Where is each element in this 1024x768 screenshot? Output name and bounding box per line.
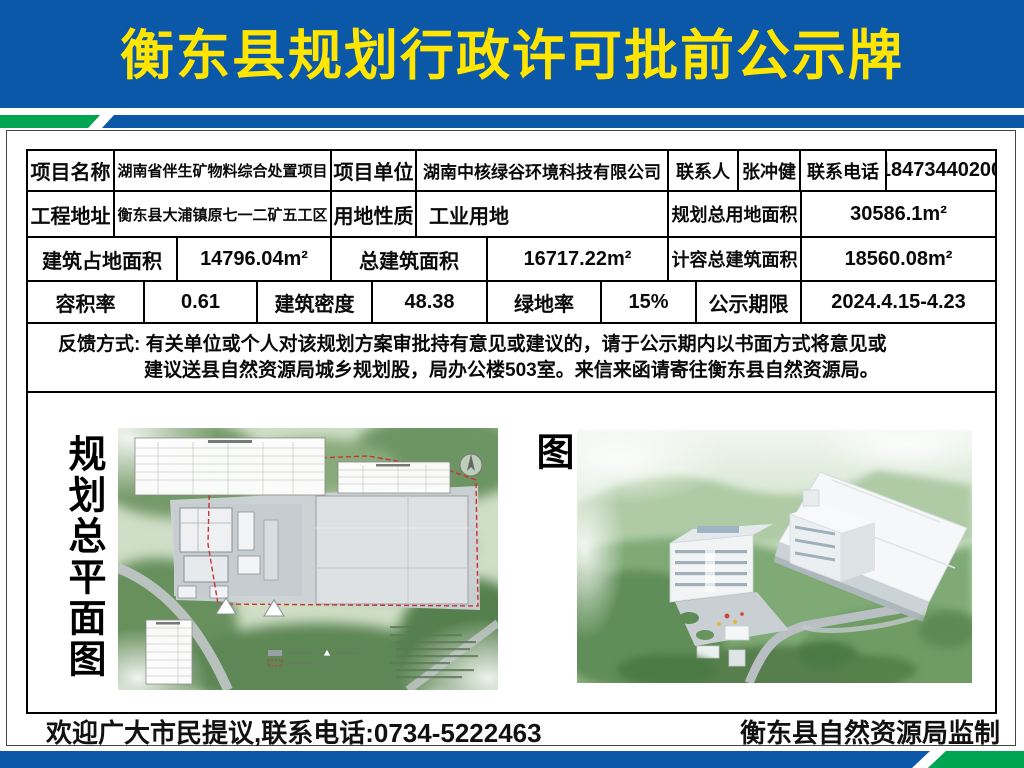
birdseye-image xyxy=(577,430,972,683)
value-total-floor-area: 16717.22m² xyxy=(488,238,669,280)
plan-data-table-1 xyxy=(135,438,325,495)
value-building-density: 48.38 xyxy=(373,282,488,322)
table-row: 建筑占地面积 14796.04m² 总建筑面积 16717.22m² 计容总建筑… xyxy=(28,238,995,282)
label-building-density: 建筑密度 xyxy=(258,282,373,322)
header-banner: 衡东县规划行政许可批前公示牌 xyxy=(0,0,1024,108)
feedback-line-1: 反馈方式: 有关单位或个人对该规划方案审批持有意见或建议的，请于公示期内以书面方… xyxy=(58,332,995,358)
value-project-unit: 湖南中核绿谷环境科技有限公司 xyxy=(417,151,669,190)
label-green-ratio: 绿地率 xyxy=(488,282,602,322)
compass-icon xyxy=(460,454,482,476)
value-total-land-area: 30586.1m² xyxy=(802,192,995,236)
value-building-footprint: 14796.04m² xyxy=(178,238,332,280)
value-project-name: 湖南省伴生矿物料综合处置项目 xyxy=(115,151,332,190)
table-row: 项目名称 湖南省伴生矿物料综合处置项目 项目单位 湖南中核绿谷环境科技有限公司 … xyxy=(28,151,995,192)
plan-data-table-3 xyxy=(146,620,192,684)
feedback-line-2: 建议送县自然资源局城乡规划股，局办公楼503室。来信来函请寄往衡东县自然资源局。 xyxy=(144,358,995,384)
label-contact-phone: 联系电话 xyxy=(801,151,887,190)
footer-supervisor: 衡东县自然资源局监制 xyxy=(740,716,1000,750)
notice-board: 衡东县规划行政许可批前公示牌 项目名称 湖南省伴生矿物料综合处置项目 项目单位 … xyxy=(0,0,1024,768)
site-plan-label: 规划总平面图 xyxy=(56,434,111,680)
facility-cluster-plan xyxy=(174,504,302,598)
label-project-unit: 项目单位 xyxy=(332,151,417,190)
value-land-use: 工业用地 xyxy=(417,192,669,236)
warehouse-plan xyxy=(316,496,468,604)
label-plot-ratio: 容积率 xyxy=(28,282,145,322)
value-project-address: 衡东县大浦镇原七一二矿五工区 xyxy=(115,192,332,236)
project-info-table: 项目名称 湖南省伴生矿物料综合处置项目 项目单位 湖南中核绿谷环境科技有限公司 … xyxy=(26,149,997,397)
bottom-stripe xyxy=(0,751,1024,768)
top-stripe xyxy=(0,115,1024,128)
label-publicity-period: 公示期限 xyxy=(697,282,802,322)
label-project-address: 工程地址 xyxy=(28,192,115,236)
label-countable-floor-area: 计容总建筑面积 xyxy=(669,238,802,280)
value-contact-phone: 18473440200 xyxy=(887,151,995,190)
value-green-ratio: 15% xyxy=(602,282,697,322)
page-title: 衡东县规划行政许可批前公示牌 xyxy=(0,0,1024,108)
footer-suggestion-hotline: 欢迎广大市民提议,联系电话:0734-5222463 xyxy=(46,716,542,750)
value-plot-ratio: 0.61 xyxy=(145,282,258,322)
feedback-instructions: 反馈方式: 有关单位或个人对该规划方案审批持有意见或建议的，请于公示期内以书面方… xyxy=(28,324,995,395)
label-total-floor-area: 总建筑面积 xyxy=(332,238,488,280)
label-land-use: 用地性质 xyxy=(332,192,417,236)
label-project-name: 项目名称 xyxy=(28,151,115,190)
label-contact-person: 联系人 xyxy=(669,151,739,190)
value-contact-person: 张冲健 xyxy=(739,151,801,190)
table-row: 容积率 0.61 建筑密度 48.38 绿地率 15% 公示期限 2024.4.… xyxy=(28,282,995,324)
label-total-land-area: 规划总用地面积 xyxy=(669,192,802,236)
value-publicity-period: 2024.4.15-4.23 xyxy=(802,282,995,322)
site-plan-image xyxy=(118,428,498,690)
value-countable-floor-area: 18560.08m² xyxy=(802,238,995,280)
table-row: 工程地址 衡东县大浦镇原七一二矿五工区 用地性质 工业用地 规划总用地面积 30… xyxy=(28,192,995,238)
plan-data-table-2 xyxy=(338,462,450,493)
label-building-footprint: 建筑占地面积 xyxy=(28,238,178,280)
